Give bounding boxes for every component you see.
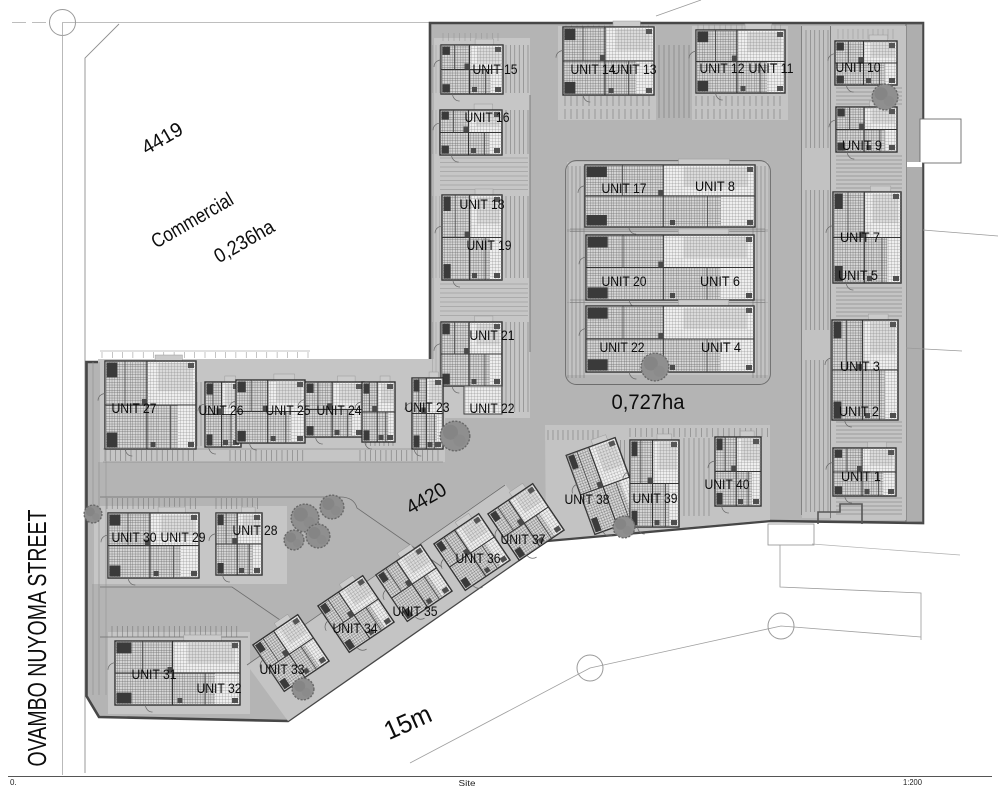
svg-text:OVAMBO NUYOMA STREET: OVAMBO NUYOMA STREET (24, 510, 52, 767)
svg-text:UNIT 11: UNIT 11 (749, 61, 794, 77)
svg-text:UNIT 26: UNIT 26 (199, 403, 244, 419)
svg-text:UNIT 21: UNIT 21 (470, 328, 515, 344)
svg-text:UNIT 17: UNIT 17 (602, 181, 647, 197)
svg-text:UNIT 23: UNIT 23 (405, 400, 450, 416)
svg-text:UNIT 33: UNIT 33 (260, 662, 305, 678)
svg-text:UNIT 22: UNIT 22 (600, 340, 645, 356)
svg-text:UNIT 7: UNIT 7 (840, 230, 880, 246)
svg-text:UNIT 25: UNIT 25 (266, 403, 311, 419)
svg-text:UNIT 19: UNIT 19 (467, 238, 512, 254)
svg-text:UNIT 22: UNIT 22 (470, 401, 515, 417)
svg-text:UNIT 15: UNIT 15 (473, 62, 518, 78)
svg-text:UNIT 10: UNIT 10 (836, 60, 881, 76)
svg-text:UNIT 29: UNIT 29 (161, 530, 206, 546)
svg-text:UNIT 27: UNIT 27 (112, 401, 157, 417)
svg-text:0.: 0. (10, 778, 17, 787)
svg-text:UNIT 18: UNIT 18 (460, 197, 505, 213)
svg-text:UNIT 4: UNIT 4 (701, 340, 741, 356)
svg-text:UNIT 32: UNIT 32 (197, 681, 242, 697)
svg-text:UNIT 35: UNIT 35 (393, 604, 438, 620)
svg-text:UNIT 34: UNIT 34 (333, 621, 378, 637)
svg-text:UNIT 37: UNIT 37 (501, 532, 546, 548)
svg-text:UNIT 8: UNIT 8 (695, 179, 735, 195)
svg-text:UNIT 9: UNIT 9 (842, 138, 882, 154)
svg-text:UNIT 31: UNIT 31 (132, 667, 177, 683)
svg-text:UNIT 36: UNIT 36 (456, 551, 501, 567)
svg-text:UNIT 30: UNIT 30 (112, 530, 157, 546)
svg-text:UNIT 20: UNIT 20 (602, 274, 647, 290)
svg-text:1:200: 1:200 (903, 778, 923, 787)
svg-text:UNIT 39: UNIT 39 (633, 491, 678, 507)
svg-text:UNIT 1: UNIT 1 (841, 469, 881, 485)
svg-text:UNIT 2: UNIT 2 (839, 404, 879, 420)
svg-text:UNIT 6: UNIT 6 (700, 274, 740, 290)
svg-text:UNIT 40: UNIT 40 (705, 477, 750, 493)
svg-text:UNIT 12: UNIT 12 (700, 61, 745, 77)
svg-text:Site: Site (459, 779, 477, 788)
svg-text:UNIT 24: UNIT 24 (317, 403, 362, 419)
svg-text:UNIT 5: UNIT 5 (838, 268, 878, 284)
svg-text:UNIT 38: UNIT 38 (565, 492, 610, 508)
svg-text:UNIT 13: UNIT 13 (612, 62, 657, 78)
svg-text:UNIT 28: UNIT 28 (233, 523, 278, 539)
svg-text:UNIT 14: UNIT 14 (571, 62, 616, 78)
svg-text:0,727ha: 0,727ha (612, 390, 685, 414)
svg-text:UNIT 16: UNIT 16 (465, 110, 510, 126)
svg-text:UNIT 3: UNIT 3 (840, 359, 880, 375)
